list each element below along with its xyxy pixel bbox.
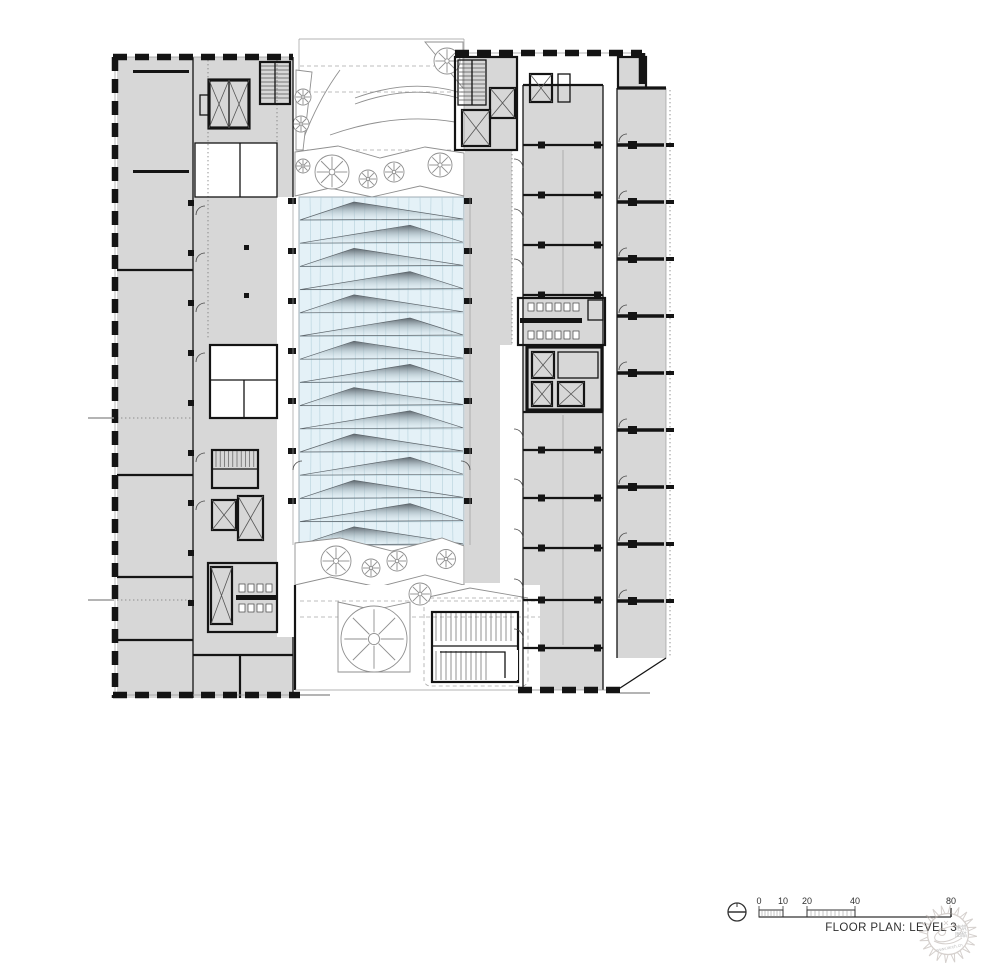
scale-label-20: 20 (802, 896, 812, 906)
large-tree-icon (341, 606, 407, 672)
scale-label-0: 0 (756, 896, 761, 906)
title-block: 0 10 20 40 80 FLOOR PLAN: LEVEL 3 (728, 896, 957, 934)
atrium-skylight (288, 197, 472, 545)
tree-icon (295, 89, 311, 105)
floor-plan-canvas: 0 10 20 40 80 FLOOR PLAN: LEVEL 3 建筑 图酷 … (0, 0, 1000, 975)
tree-icon (315, 155, 349, 189)
bottom-courtyard (295, 583, 545, 690)
north-arrow-icon (728, 903, 746, 921)
watermark-badge: 建筑 图酷 www.iarch.cn (919, 905, 977, 963)
watermark-chars-bottom: 图酷 (955, 931, 967, 939)
section-markers (88, 418, 114, 600)
scale-bar (759, 906, 951, 917)
tree-icon (362, 559, 380, 577)
tree-icon (387, 551, 407, 571)
interior-wall (133, 70, 189, 73)
tree-icon (321, 546, 351, 576)
tree-icon (437, 550, 456, 569)
tree-icon (293, 116, 309, 132)
plan-title: FLOOR PLAN: LEVEL 3 (825, 922, 957, 934)
tree-icon (384, 162, 404, 182)
scale-label-40: 40 (850, 896, 860, 906)
scale-label-80: 80 (946, 896, 956, 906)
watermark-chars-top: 建筑 (955, 924, 967, 932)
tree-icon (428, 153, 452, 177)
tree-icon (409, 583, 431, 605)
tree-icon (359, 170, 377, 188)
top-courtyard (293, 39, 464, 197)
scale-label-10: 10 (778, 896, 788, 906)
tree-icon (296, 159, 310, 173)
drawing-sheet: 0 10 20 40 80 FLOOR PLAN: LEVEL 3 建筑 图酷 … (0, 0, 1000, 975)
